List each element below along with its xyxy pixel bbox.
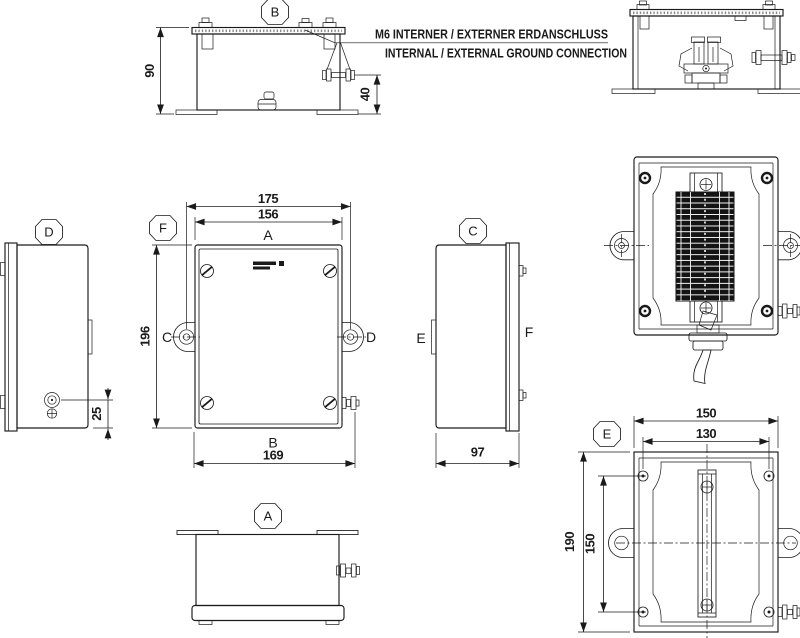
latch (1, 263, 6, 276)
side-ground-bolt (752, 51, 795, 65)
mounting-lug (171, 323, 366, 352)
view-label: E (603, 427, 612, 442)
side-ground-bolt (778, 605, 800, 619)
hinge-rib (88, 320, 92, 354)
side-ground-bolt (323, 69, 355, 81)
face-label-right: F (525, 324, 534, 340)
side-ground-bolt (342, 397, 359, 410)
dim-label: 90 (142, 64, 157, 78)
enclosure-body (197, 34, 340, 110)
view-label: A (264, 509, 273, 524)
hinge-rib (432, 320, 437, 354)
wall-flange (317, 531, 358, 535)
technical-drawing: B (0, 0, 800, 638)
view-f-front: F (138, 191, 377, 468)
side-ground-bolt (337, 564, 360, 577)
dim-label: 150 (583, 534, 598, 554)
view-c-side: C E F 97 (416, 219, 533, 469)
view-b-side: B (142, 0, 381, 115)
corner-screw (201, 265, 337, 410)
view-terminal-open (604, 157, 800, 384)
lid-plate (192, 606, 344, 621)
view-label-b: B (262, 0, 289, 25)
note-line-english: INTERNAL / EXTERNAL GROUND CONNECTION (385, 46, 627, 61)
face-label-top: A (263, 227, 273, 243)
dim-150-left: 150 (583, 476, 647, 612)
foot (326, 621, 339, 625)
bottom-knob (258, 92, 276, 110)
dim-label: 25 (89, 407, 104, 421)
dim-130: 130 (643, 426, 769, 469)
dim-40: 40 (355, 75, 382, 114)
face-label-left: C (162, 329, 172, 345)
view-d-side: D 25 (1, 220, 114, 441)
enclosure-body (196, 535, 339, 606)
drawing-canvas: B (0, 0, 800, 638)
latch (1, 396, 6, 409)
view-label: C (468, 224, 477, 239)
ground-connection-note: M6 INTERNER / EXTERNER ERDANSCHLUSS INTE… (305, 27, 627, 70)
view-a-side: A (177, 504, 360, 625)
note-line-german: M6 INTERNER / EXTERNER ERDANSCHLUSS (375, 27, 608, 42)
view-label: F (159, 221, 167, 236)
wall-flange (177, 531, 218, 535)
ground-bolt-detail (45, 393, 60, 419)
mounting-foot (317, 110, 358, 115)
dim-label: 97 (471, 445, 485, 460)
lid-edge (506, 243, 519, 431)
dim-97: 97 (436, 433, 519, 468)
dim-label: 150 (696, 406, 716, 421)
side-ground-bolt (778, 304, 800, 318)
enclosure-body (436, 245, 506, 428)
cover-screw (199, 18, 336, 28)
din-terminal-clamp (679, 37, 733, 89)
face-label-right: D (366, 329, 376, 345)
foot (199, 621, 212, 625)
dim-25: 25 (61, 388, 113, 440)
view-e-open: E (562, 406, 800, 638)
view-label-a: A (255, 504, 282, 529)
dim-label: 190 (562, 532, 577, 552)
dim-label: 169 (263, 448, 283, 463)
enclosure-body (633, 16, 780, 89)
mounting-foot (176, 110, 217, 115)
view-label-c: C (460, 219, 487, 244)
view-section-clamp (612, 1, 800, 94)
cover-screw (637, 1, 775, 10)
wall-flange (612, 89, 655, 94)
lid-ground-stud (299, 19, 312, 28)
wall-flange (758, 89, 800, 94)
view-label: B (271, 5, 280, 20)
view-label: D (44, 225, 53, 240)
view-label-f: F (150, 216, 177, 241)
mounting-panel (653, 462, 759, 622)
face-label-left: E (416, 330, 425, 346)
ground-wire (694, 350, 711, 384)
view-label-d: D (36, 220, 63, 245)
dim-label: 130 (696, 426, 716, 441)
terminal-strip (676, 192, 734, 301)
brand-logo (253, 261, 284, 270)
dim-90: 90 (142, 28, 189, 115)
dim-label: 175 (258, 191, 278, 206)
enclosure-front (195, 245, 342, 428)
dim-label: 156 (258, 207, 278, 222)
dim-label: 196 (138, 326, 153, 346)
cable-gland (689, 333, 727, 384)
view-label-e: E (594, 422, 621, 447)
dim-label: 40 (358, 88, 373, 102)
lid-edge (5, 243, 17, 431)
